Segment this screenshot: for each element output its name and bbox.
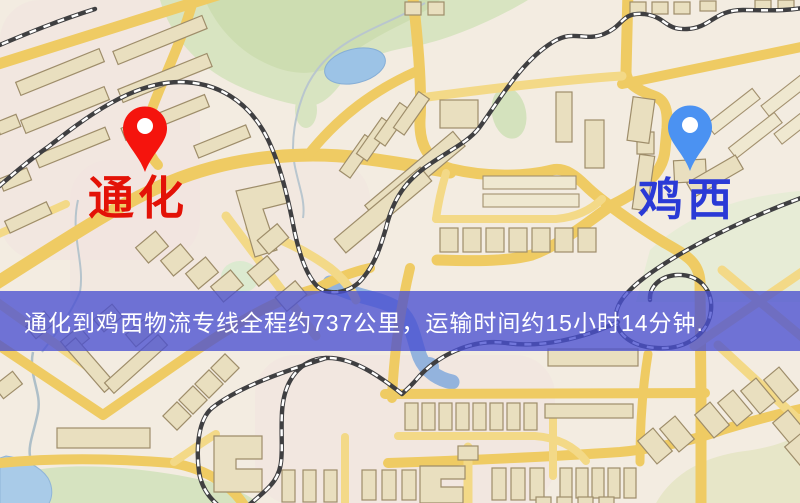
logistics-route-map: 通化 鸡西 通化到鸡西物流专线全程约737公里，运输时间约15小时14分钟. [0,0,800,503]
route-info-banner: 通化到鸡西物流专线全程约737公里，运输时间约15小时14分钟. [0,291,800,351]
destination-pin-hole [682,117,698,133]
destination-marker-icon[interactable] [663,101,717,175]
origin-pin-shape [123,106,167,172]
origin-pin-hole [137,118,153,134]
map-canvas [0,0,800,503]
origin-city-label: 通化 [88,176,188,222]
origin-marker-icon[interactable] [118,102,172,176]
route-info-text: 通化到鸡西物流专线全程约737公里，运输时间约15小时14分钟. [0,304,704,338]
destination-city-label: 鸡西 [638,178,736,223]
destination-pin-shape [668,105,712,171]
